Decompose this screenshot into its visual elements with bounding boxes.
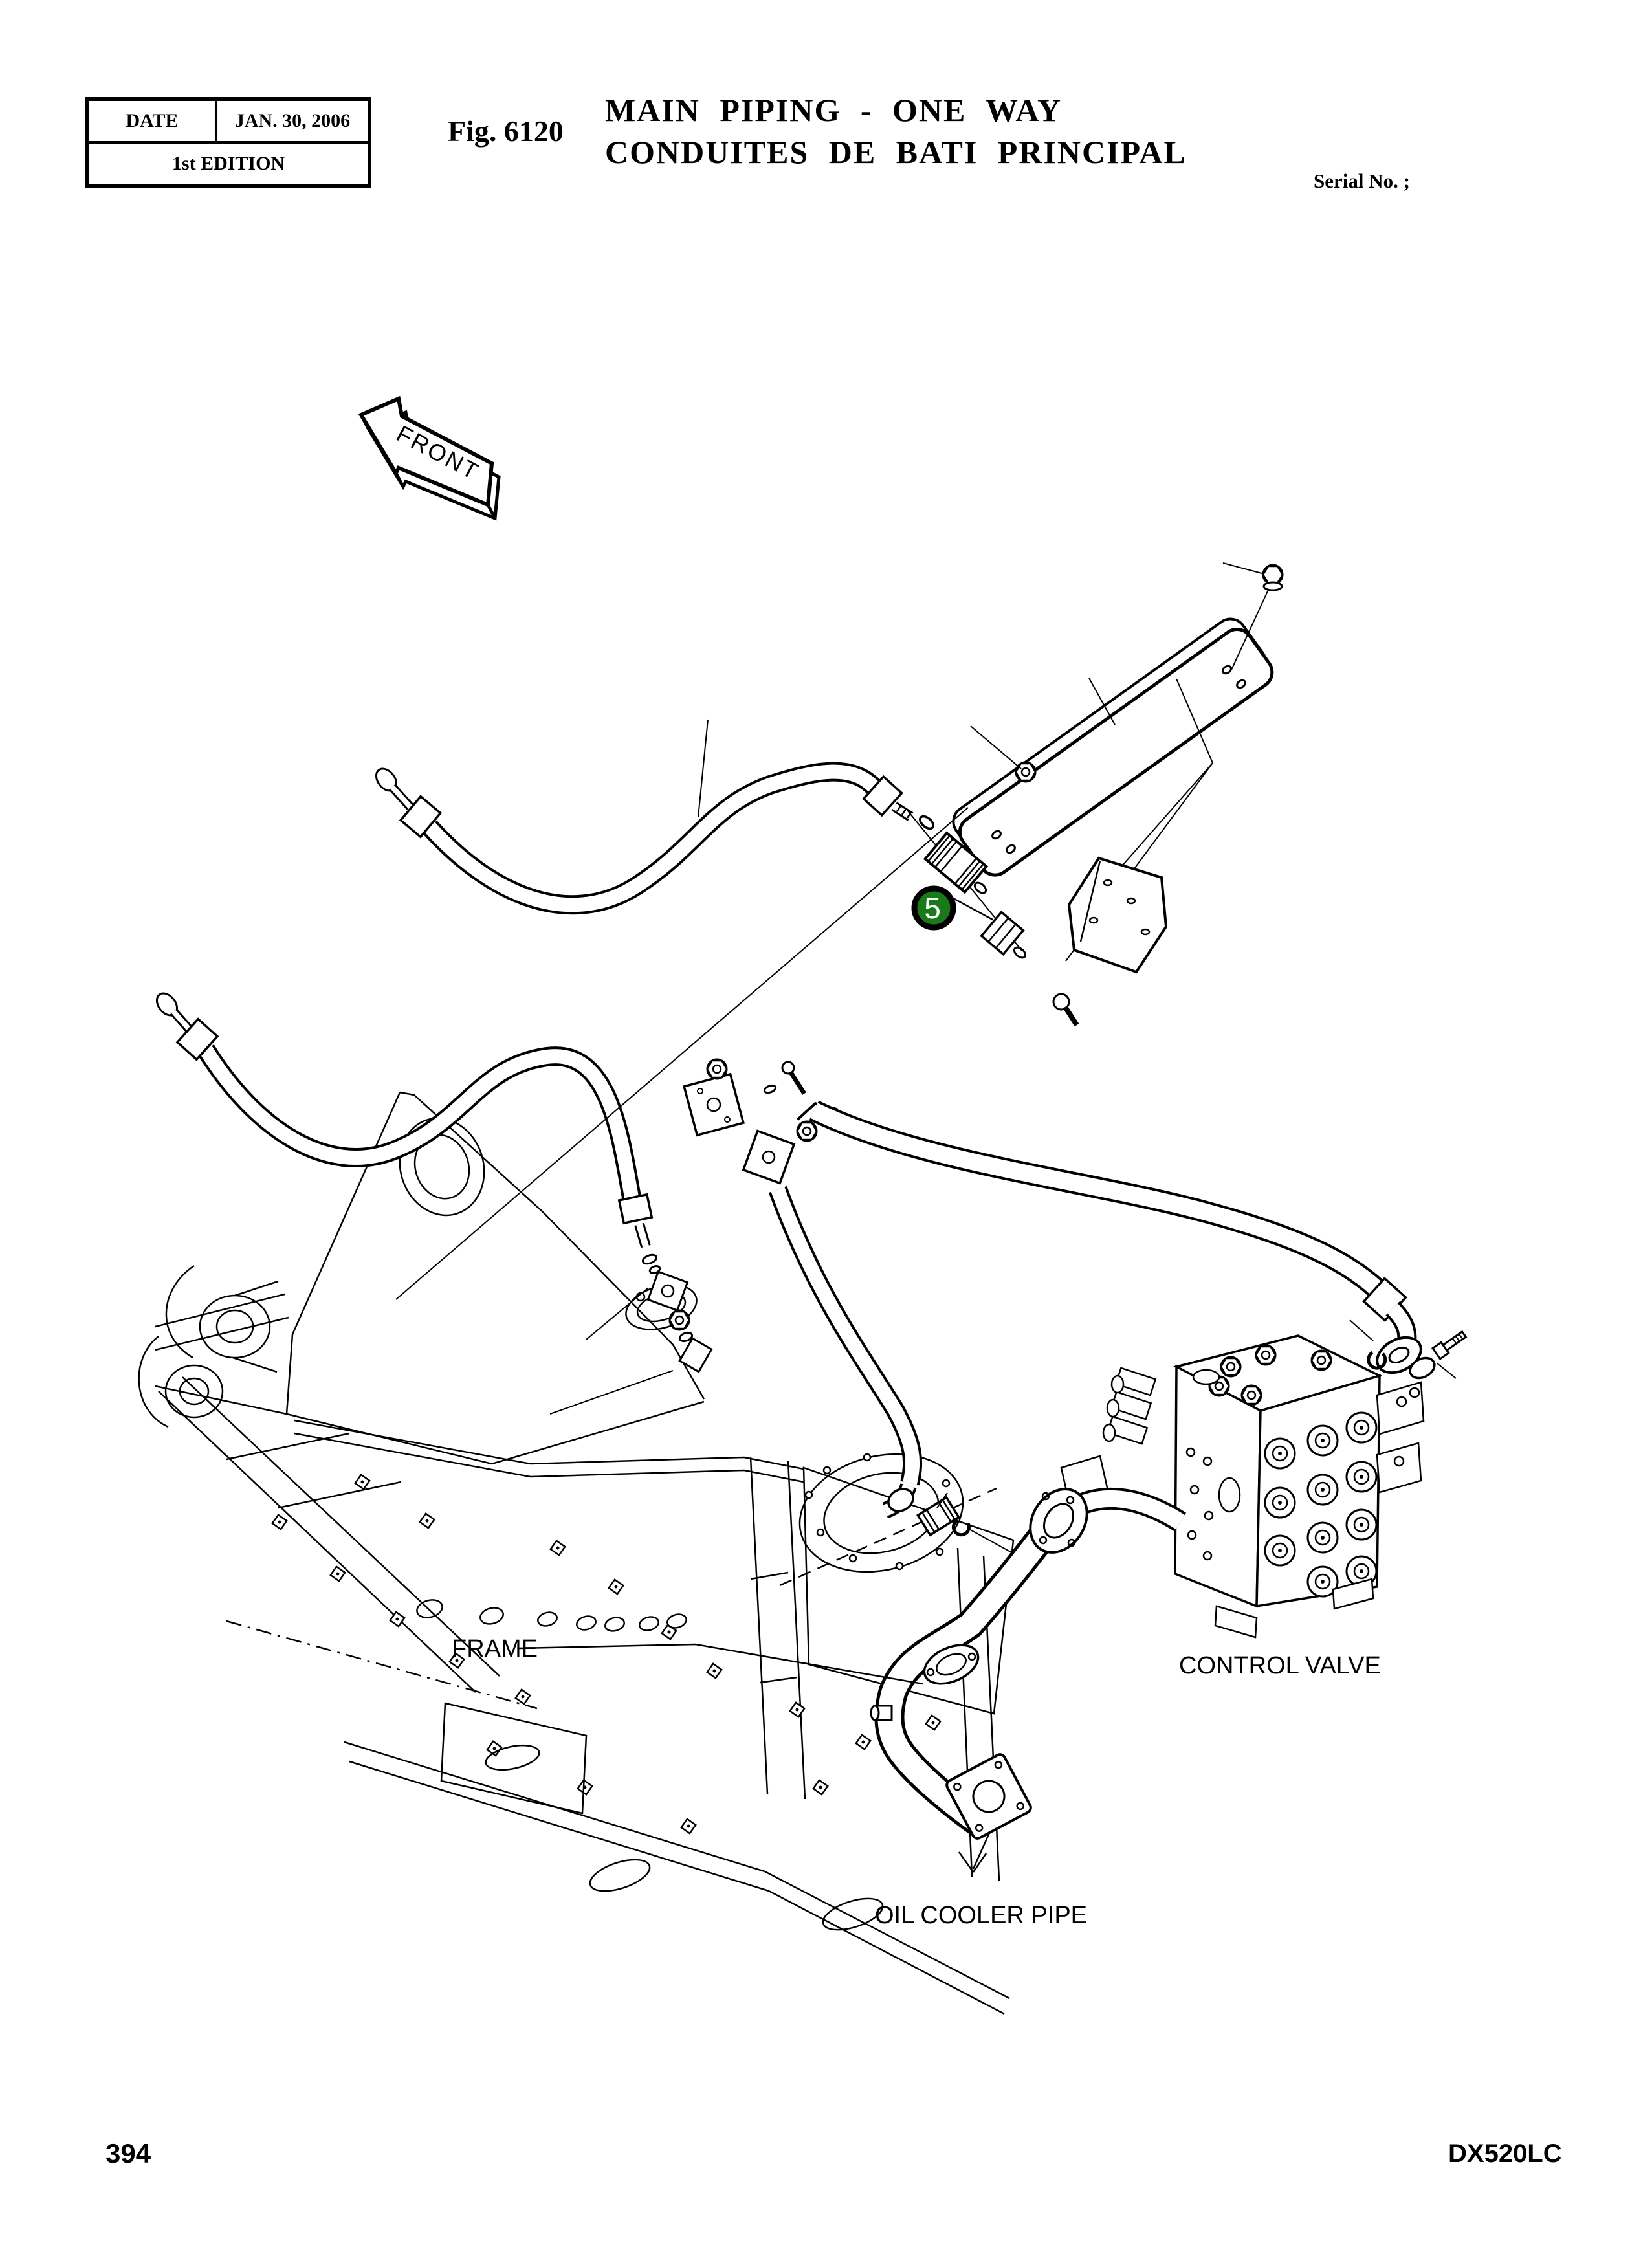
callout-5-number: 5 (924, 891, 941, 925)
page-number: 394 (105, 2138, 151, 2169)
oil-cooler-pipe (871, 1479, 1098, 1840)
manual-page: DATE JAN. 30, 2006 1st EDITION Fig. 6120… (0, 0, 1652, 2263)
hose-lower (153, 989, 712, 1414)
pipe-to-control-valve (814, 1110, 1468, 1382)
mounting-plate (947, 586, 1278, 881)
label-frame: FRAME (452, 1635, 538, 1662)
exploded-parts-diagram: FRONT (0, 0, 1652, 2263)
frame-weldment (139, 1092, 1013, 2014)
hose-upper (372, 765, 911, 905)
control-valve-assembly (1061, 1336, 1424, 1637)
support-bracket (1053, 858, 1166, 1025)
front-direction-arrow: FRONT (361, 399, 499, 518)
flange-bolt (1223, 563, 1283, 590)
hex-nut-mid (971, 726, 1035, 782)
hose-to-oil-cooler (778, 1189, 1020, 1557)
label-control-valve: CONTROL VALVE (1179, 1652, 1381, 1679)
model-code: DX520LC (1448, 2139, 1562, 2169)
callout-5: 5 (914, 889, 993, 927)
label-oil-cooler-pipe: OIL COOLER PIPE (875, 1902, 1087, 1929)
